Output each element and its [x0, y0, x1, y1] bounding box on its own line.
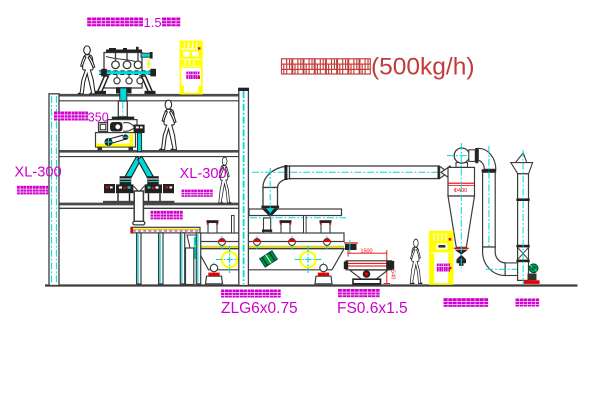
svg-text:(500kg/h): (500kg/h): [371, 54, 475, 81]
svg-text:FS0.6x1.5: FS0.6x1.5: [337, 300, 408, 317]
svg-text:ZLG6x0.75: ZLG6x0.75: [221, 300, 298, 317]
svg-text:XL-300: XL-300: [180, 166, 227, 182]
svg-text:540: 540: [390, 270, 396, 279]
svg-text:Φ400: Φ400: [454, 188, 468, 194]
svg-text:1.5: 1.5: [144, 15, 162, 30]
svg-text:XL-300: XL-300: [15, 165, 62, 181]
svg-text:350: 350: [88, 111, 109, 125]
svg-text:1500: 1500: [361, 248, 373, 254]
